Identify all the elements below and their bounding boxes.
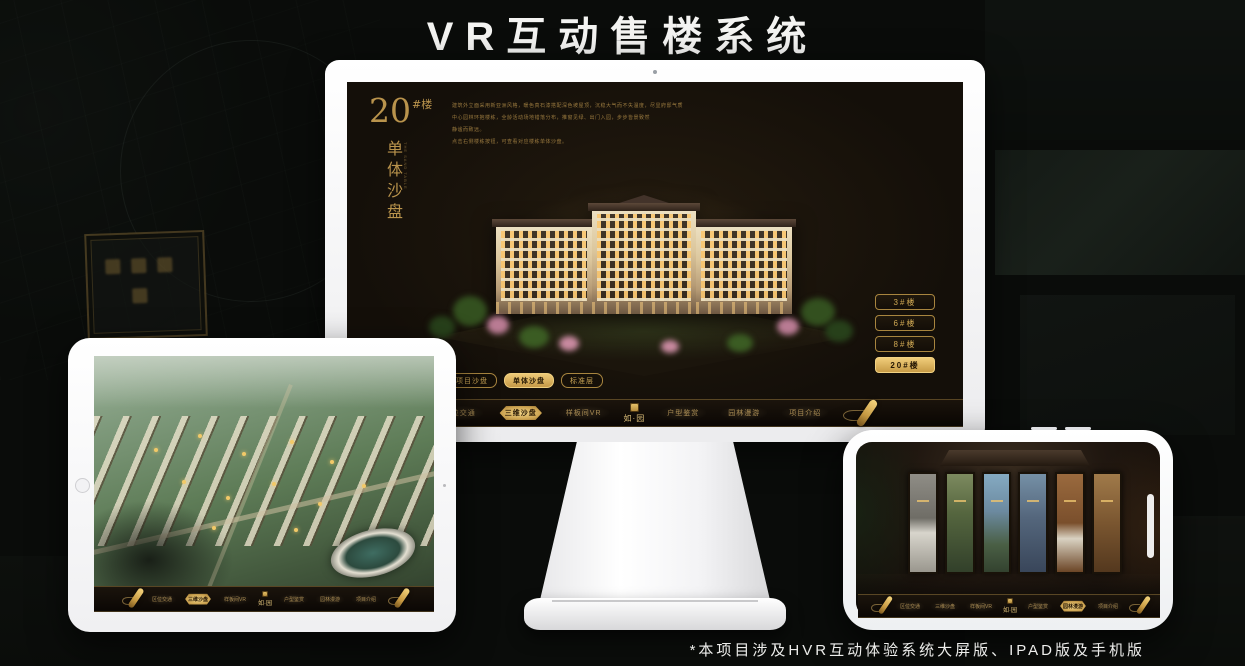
description-line: 点击右侧楼栋按钮，可查看对应楼栋单体沙盘。 (452, 136, 692, 148)
floor-button-8[interactable]: 8#楼 (875, 336, 935, 352)
floor-bands (501, 230, 587, 301)
menu-item-project-intro[interactable]: 项目介绍 (782, 406, 828, 420)
description-line: 静谧而致远。 (452, 124, 692, 136)
building-marker-dot[interactable] (154, 448, 158, 452)
building-right-wing (696, 226, 792, 314)
scroll-ornament-icon[interactable] (388, 591, 406, 607)
page-title: VR互动售楼系统 (0, 4, 1245, 62)
block-description: 建筑外立面采用新亚洲风格，暖色真石漆搭配深色坡屋顶，沉稳大气而不失温度，尽显府邸… (452, 100, 692, 148)
menu-item-showroom-vr[interactable]: 样板间VR (966, 601, 996, 612)
building-marker-dot[interactable] (318, 502, 322, 506)
brand-logo: 如·园 (1003, 598, 1017, 614)
brand-name: 如·园 (1003, 605, 1017, 614)
building-marker-dot[interactable] (242, 452, 246, 456)
menu-item-3d-sandtable[interactable]: 三维沙盘 (931, 601, 959, 612)
gallery-panel-courtyard[interactable] (945, 472, 975, 574)
tab-standard-floor[interactable]: 标准层 (561, 373, 603, 388)
menu-item-floorplans[interactable]: 户型鉴赏 (1024, 601, 1052, 612)
tree-green (453, 296, 487, 326)
menu-item-location[interactable]: 区位交通 (148, 594, 176, 605)
building-model[interactable] (494, 204, 794, 314)
phone-volume-button[interactable] (1031, 427, 1057, 430)
background-aerial-photo-2 (1020, 295, 1235, 435)
brand-name: 如·园 (624, 413, 646, 424)
menu-item-garden-roam-active[interactable]: 园林漫游 (1059, 601, 1087, 612)
menu-item-location[interactable]: 区位交通 (896, 601, 924, 612)
menu-item-garden-roam[interactable]: 园林漫游 (316, 594, 344, 605)
block-heading: 20#楼 (369, 94, 432, 127)
gallery-panel-interior[interactable] (908, 472, 938, 574)
menu-item-showroom-vr[interactable]: 样板间VR (220, 594, 250, 605)
roof (492, 219, 596, 227)
tree-pink (777, 318, 799, 335)
description-line: 建筑外立面采用新亚洲风格，暖色真石漆搭配深色坡屋顶，沉稳大气而不失温度，尽显府邸… (452, 100, 692, 112)
ipad-home-button[interactable] (75, 478, 90, 493)
tree-green (727, 334, 753, 352)
brand-name: 如·园 (258, 598, 272, 607)
gallery-panel-tower[interactable] (1018, 472, 1048, 574)
building-marker-dot[interactable] (330, 460, 334, 464)
ipad-screen (94, 356, 434, 610)
menu-item-garden-roam[interactable]: 园林漫游 (721, 406, 767, 420)
menu-item-showroom-vr[interactable]: 样板间VR (559, 406, 609, 420)
aerial-haze (94, 356, 434, 408)
floor-button-20-active[interactable]: 20#楼 (875, 357, 935, 373)
scroll-ornament-icon[interactable] (1129, 599, 1147, 613)
tree-green (429, 316, 455, 338)
block-title-english: THE SAND TABLE (403, 142, 408, 190)
floor-button-6[interactable]: 6#楼 (875, 315, 935, 331)
ipad-camera-dot (443, 484, 446, 487)
brand-seal-icon (1007, 598, 1013, 604)
menu-item-project-intro[interactable]: 项目介绍 (1094, 601, 1122, 612)
ipad-menu-bar: 区位交通 三维沙盘 样板间VR 如·园 户型鉴赏 园林漫游 项目介绍 (94, 586, 434, 612)
tree-pink (487, 316, 509, 334)
monitor-stand-neck (540, 442, 770, 600)
gallery-panel-building-sky[interactable] (982, 472, 1012, 574)
building-center-tower (592, 210, 696, 314)
brand-logo: 如·园 (624, 403, 646, 424)
gallery-panel-autumn[interactable] (1055, 472, 1085, 574)
menu-item-3d-sandtable-active[interactable]: 三维沙盘 (184, 594, 212, 605)
background-certificate-plaque (84, 230, 208, 340)
building-3d-viewport[interactable] (409, 148, 879, 386)
scroll-ornament-icon[interactable] (843, 403, 873, 423)
building-podium (592, 302, 696, 314)
scroll-ornament-icon[interactable] (871, 599, 889, 613)
building-left-wing (496, 226, 592, 314)
building-marker-dot[interactable] (362, 484, 366, 488)
brand-seal-icon (630, 403, 639, 412)
roof (588, 203, 700, 211)
scroll-ornament-icon[interactable] (122, 591, 140, 607)
tree-pink (559, 336, 579, 351)
sandtable-tabs: 项目沙盘 单体沙盘 标准层 (447, 373, 603, 388)
poster-stage: VR互动售楼系统 20#楼 单体沙盘 THE SAND TABLE 建筑外立面采… (0, 0, 1245, 666)
scroll-indicator[interactable] (1147, 494, 1154, 558)
floor-button-group: 3#楼 6#楼 8#楼 20#楼 (875, 294, 935, 373)
description-line: 中心园林环抱楼栋，全龄活动场地错落分布，推窗见绿、出门入园，步步皆景致然 (452, 112, 692, 124)
menu-item-3d-sandtable-active[interactable]: 三维沙盘 (498, 406, 544, 420)
phone-power-button[interactable] (1065, 427, 1091, 430)
tab-single-sandtable-active[interactable]: 单体沙盘 (504, 373, 554, 388)
building-podium (696, 302, 792, 314)
floor-button-3[interactable]: 3#楼 (875, 294, 935, 310)
roof (692, 219, 796, 227)
building-marker-dot[interactable] (226, 496, 230, 500)
block-number: 20 (369, 91, 411, 130)
tree-green (825, 320, 853, 342)
gallery-panel-row (908, 474, 1122, 572)
background-aerial-photo-1 (995, 150, 1245, 275)
footnote-text: *本项目涉及HVR互动体验系统大屏版、IPAD版及手机版 (690, 639, 1145, 660)
building-marker-dot[interactable] (272, 482, 276, 486)
floor-bands (597, 214, 691, 301)
entrance-gate-lintel (940, 450, 1090, 466)
building-marker-dot[interactable] (198, 434, 202, 438)
tree-pink (661, 340, 679, 353)
gallery-panel-shelf[interactable] (1092, 472, 1122, 574)
phone-screen (856, 442, 1160, 618)
monitor-stand-base (524, 598, 786, 630)
menu-item-floorplans[interactable]: 户型鉴赏 (660, 406, 706, 420)
menu-item-floorplans[interactable]: 户型鉴赏 (280, 594, 308, 605)
monitor-stand-seam (552, 600, 758, 602)
menu-item-project-intro[interactable]: 项目介绍 (352, 594, 380, 605)
tree-green (519, 326, 549, 348)
building-podium (496, 302, 592, 314)
building-marker-dot[interactable] (290, 440, 294, 444)
brand-seal-icon (262, 591, 268, 597)
block-title-vertical: 单体沙盘 (381, 140, 405, 224)
floor-bands (701, 230, 787, 301)
phone-menu-bar: 区位交通 三维沙盘 样板间VR 如·园 户型鉴赏 园林漫游 项目介绍 (858, 594, 1160, 618)
block-number-unit: #楼 (412, 98, 432, 111)
building-marker-dot[interactable] (182, 480, 186, 484)
brand-logo: 如·园 (258, 591, 272, 607)
building-marker-dot[interactable] (294, 528, 298, 532)
monitor-camera-dot (653, 70, 657, 74)
building-marker-dot[interactable] (212, 526, 216, 530)
